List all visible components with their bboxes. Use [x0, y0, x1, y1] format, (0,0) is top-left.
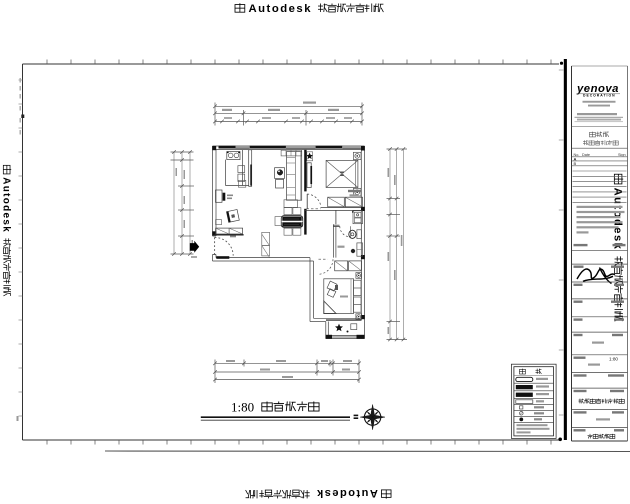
svg-text:Autodesk: Autodesk	[0, 177, 11, 233]
svg-text:Autodesk: Autodesk	[249, 3, 312, 15]
svg-text:Date: Date	[582, 153, 590, 157]
svg-text:DECORATION: DECORATION	[583, 94, 616, 98]
svg-text:Autodesk: Autodesk	[316, 487, 378, 499]
svg-text:1:80: 1:80	[609, 357, 618, 362]
svg-text:Sign: Sign	[618, 153, 626, 157]
svg-text:1:80: 1:80	[231, 399, 254, 414]
svg-text:B: B	[574, 161, 577, 166]
